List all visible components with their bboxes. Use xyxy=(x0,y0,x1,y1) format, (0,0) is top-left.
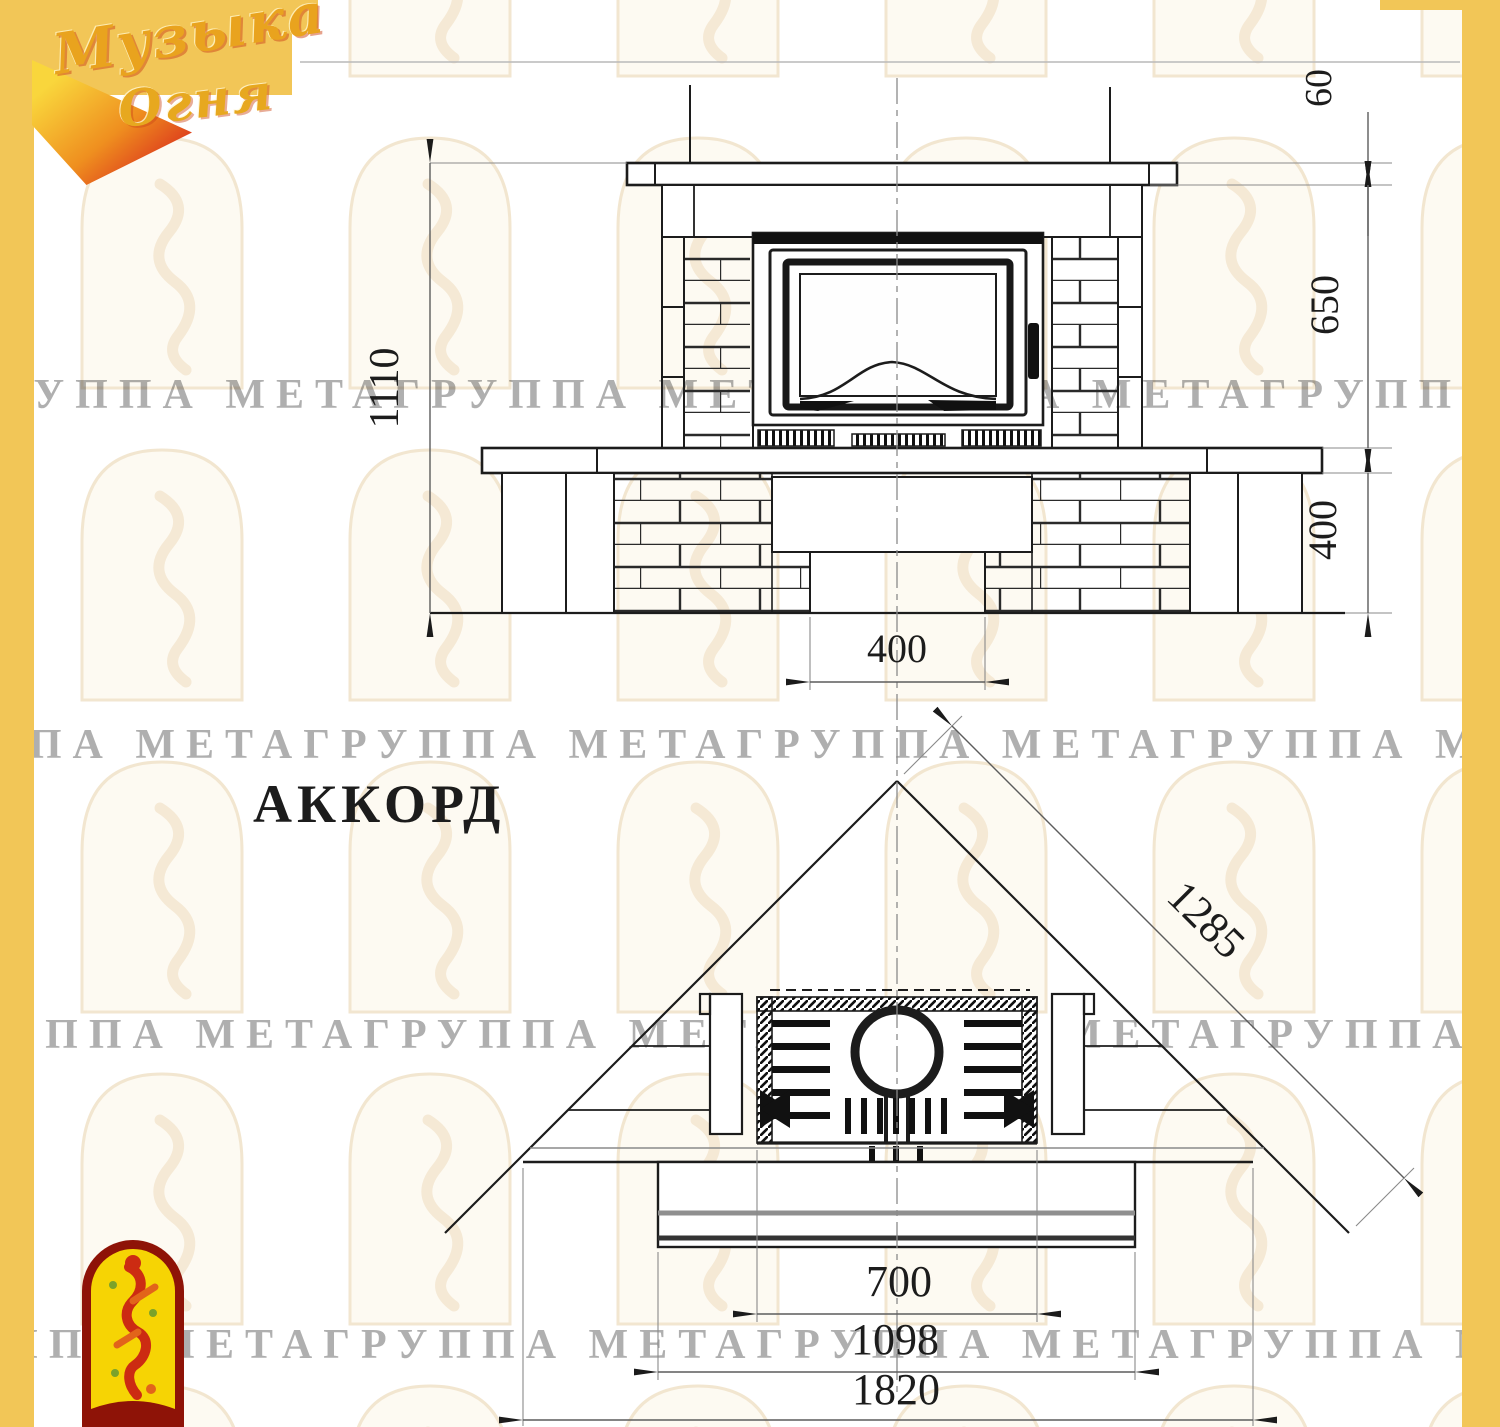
logo-muzyka-ognya: Музыка Огня xyxy=(0,0,330,210)
firebox-glass xyxy=(800,274,996,396)
mantel-shelf xyxy=(627,163,1177,185)
dim-label-firebox-width: 700 xyxy=(866,1257,932,1306)
logo-text-line2: Огня xyxy=(116,67,277,136)
flame-dancer-icon xyxy=(91,1249,175,1427)
watermark-text-row: ГРУППА МЕТАГРУППА МЕТАГРУППА МЕТАГРУППА … xyxy=(0,1322,1500,1368)
firebox-front xyxy=(753,233,1043,446)
dim-label-base-height: 400 xyxy=(1300,500,1345,560)
catalog-page: ГРУППА МЕТАГРУППА МЕТАГРУППА МЕТАГРУППА … xyxy=(0,0,1500,1427)
dim-label-overall-width: 1820 xyxy=(852,1365,940,1414)
right-accent-band xyxy=(1462,0,1500,1427)
dim-label-base-width: 1098 xyxy=(851,1315,939,1364)
hearth-shelf xyxy=(482,448,1322,473)
firebox-top-band xyxy=(753,233,1043,244)
plan-right-upright xyxy=(1052,994,1084,1134)
base-recess-panel xyxy=(772,477,1032,552)
dim-label-niche-width: 400 xyxy=(867,626,927,671)
model-title: АККОРД xyxy=(253,774,505,834)
plan-left-upright xyxy=(710,994,742,1134)
dim-label-total-height: 1110 xyxy=(362,348,408,429)
fire-dancer-emblem xyxy=(82,1240,184,1427)
left-accent-band xyxy=(0,0,34,1427)
watermark-text-row: ГРУППА МЕТАГРУППА МЕТАГРУППА МЕТАГРУППА … xyxy=(0,722,1500,768)
technical-drawing: ГРУППА МЕТАГРУППА МЕТАГРУППА МЕТАГРУППА … xyxy=(0,0,1500,1427)
base-left-pier xyxy=(502,473,614,613)
dim-label-mantel-thickness: 60 xyxy=(1298,69,1340,107)
top-right-accent-strip xyxy=(1380,0,1500,10)
frieze-band xyxy=(662,185,1142,237)
base-right-pier xyxy=(1190,473,1302,613)
dim-label-firebox-zone: 650 xyxy=(1302,275,1347,335)
watermark-text-row: ГРУППА МЕТАГРУППА МЕТАГРУППА МЕТАГРУППА … xyxy=(0,1012,1500,1058)
firebox-door-handle xyxy=(1028,323,1039,379)
